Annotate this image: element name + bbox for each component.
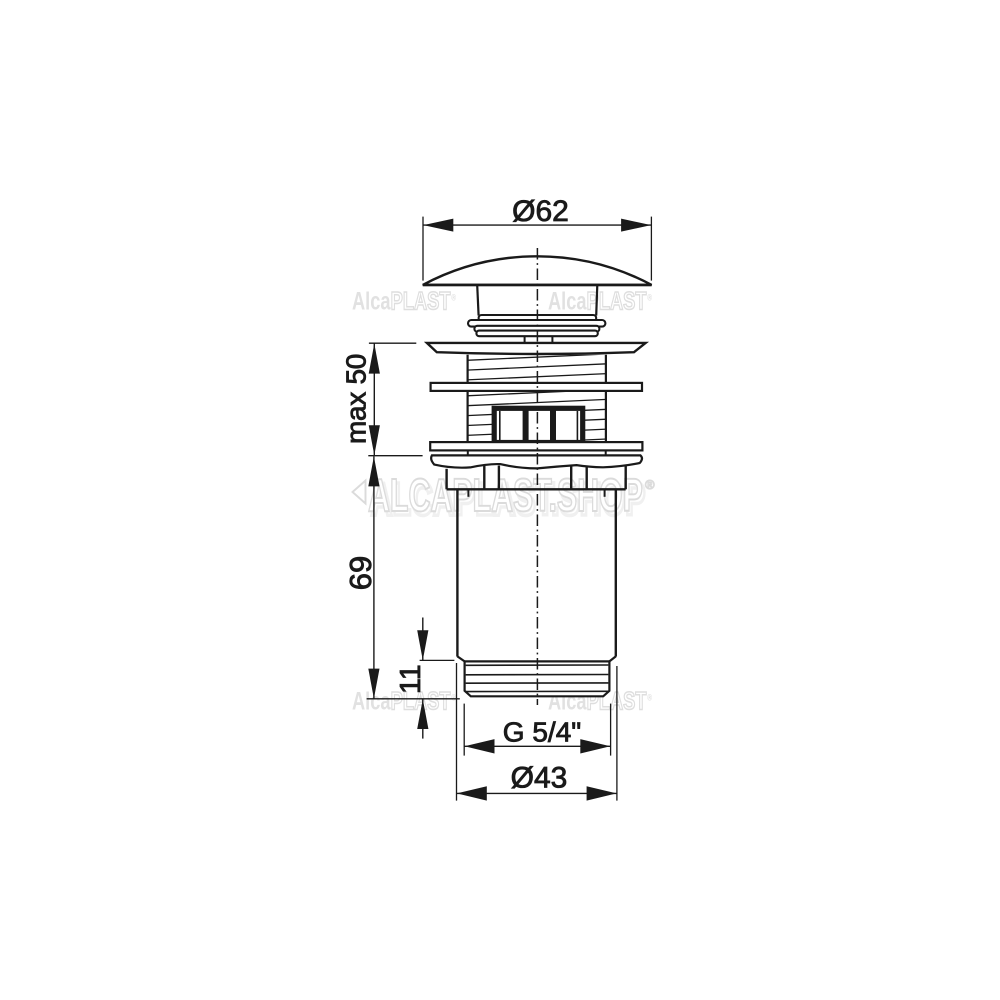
svg-text:max 50: max 50 — [340, 354, 371, 444]
svg-text:Ø43: Ø43 — [511, 761, 568, 794]
svg-text:®: ® — [645, 477, 655, 492]
svg-text:®: ® — [647, 293, 652, 303]
svg-text:Alca: Alca — [352, 687, 391, 716]
svg-text:®: ® — [451, 693, 456, 703]
svg-text:69: 69 — [343, 556, 378, 590]
svg-text:11: 11 — [395, 664, 427, 694]
svg-text:Ø62: Ø62 — [512, 195, 569, 228]
svg-text:Alca: Alca — [352, 287, 391, 316]
svg-text:ALCAPLAST.SHOP: ALCAPLAST.SHOP — [368, 471, 643, 522]
svg-text:PLAST: PLAST — [391, 287, 451, 316]
svg-text:Alca: Alca — [548, 287, 587, 316]
svg-text:G 5/4": G 5/4" — [503, 717, 581, 748]
svg-text:®: ® — [451, 293, 456, 303]
svg-text:®: ® — [647, 693, 652, 703]
